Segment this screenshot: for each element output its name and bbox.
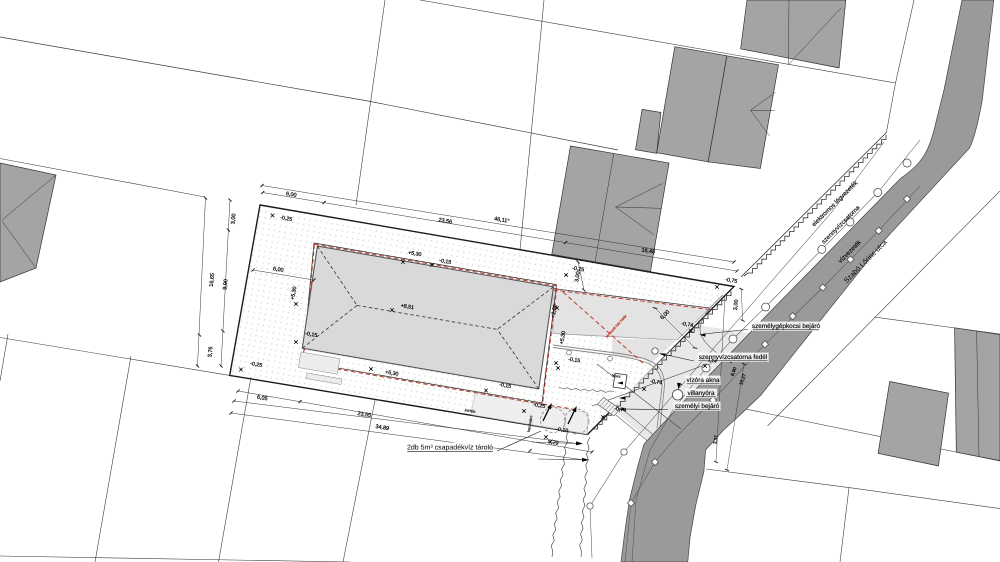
svg-text:vízóra akna: vízóra akna — [686, 377, 719, 384]
svg-text:személyi bejáró: személyi bejáró — [675, 403, 720, 410]
svg-text:villanyóra: villanyóra — [688, 390, 715, 397]
svg-text:személygépkocsi bejáró: személygépkocsi bejáró — [752, 323, 821, 330]
svg-text:3,00: 3,00 — [733, 299, 740, 310]
svg-text:3,76: 3,76 — [207, 346, 214, 357]
svg-text:3,00: 3,00 — [230, 213, 237, 224]
svg-text:9,90: 9,90 — [222, 279, 229, 290]
svg-text:2db 5m³ csapadékvíz tároló: 2db 5m³ csapadékvíz tároló — [407, 444, 493, 452]
